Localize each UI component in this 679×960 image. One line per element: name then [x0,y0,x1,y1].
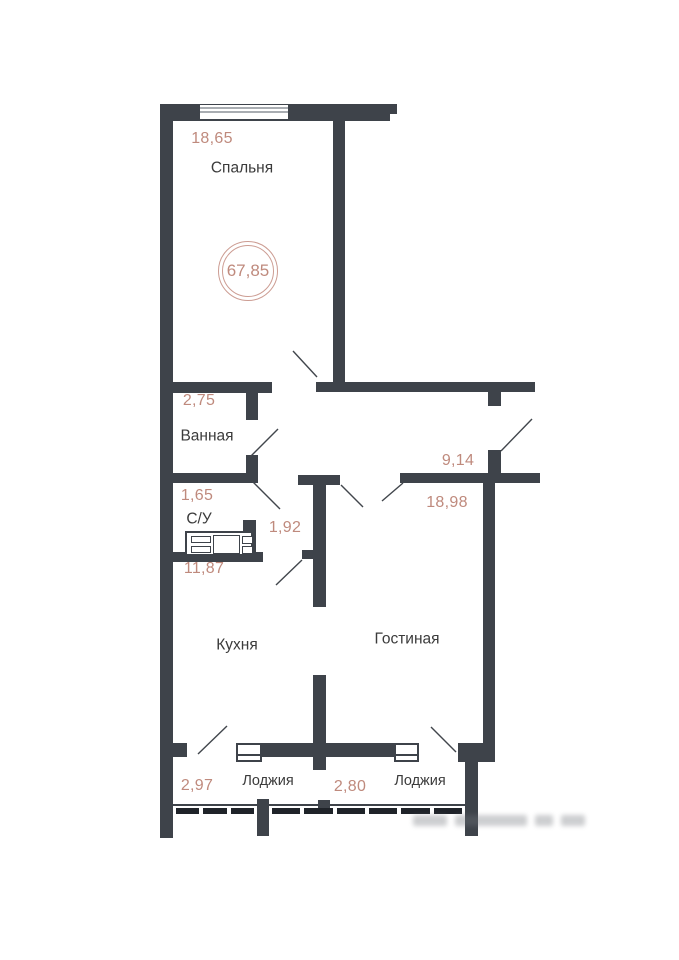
loggia1-door-swing [198,726,227,754]
loggia1-name-label: Лоджия [242,774,293,789]
loggia1-area-label: 2,97 [181,778,213,794]
total-area-value: 67,85 [227,261,270,281]
kitchen-name-label: Кухня [216,637,257,653]
wc-area-label: 1,65 [181,488,213,504]
bathroom-area-label: 2,75 [183,393,215,409]
total-area-badge: 67,85 [218,241,278,301]
entrance-door-swing [501,419,532,451]
watermark [413,810,588,830]
floor-plan: 18,65 Спальня 67,85 2,75 Ванная 1,65 С/У… [0,0,679,960]
kitchen-door-swing [276,560,302,585]
corridor-area-label: 1,92 [269,520,301,536]
bedroom-area-label: 18,65 [191,131,233,147]
loggia2-area-label: 2,80 [334,779,366,795]
bedroom-name-label: Спальня [211,160,273,176]
bathroom-name-label: Ванная [180,428,233,444]
hallway-area-label: 9,14 [442,453,474,469]
living-name-label: Гостиная [374,631,439,647]
loggia2-name-label: Лоджия [394,774,445,789]
living-opening-right [382,483,403,501]
living-opening-left [341,485,363,507]
living-area-label: 18,98 [426,495,468,511]
bathroom-door-swing [250,429,278,457]
bedroom-door-swing [293,351,317,377]
wc-name-label: С/У [186,511,211,527]
kitchen-area-label: 11,87 [184,561,224,577]
wc-door-swing [252,481,280,509]
loggia2-door-swing [431,727,456,752]
